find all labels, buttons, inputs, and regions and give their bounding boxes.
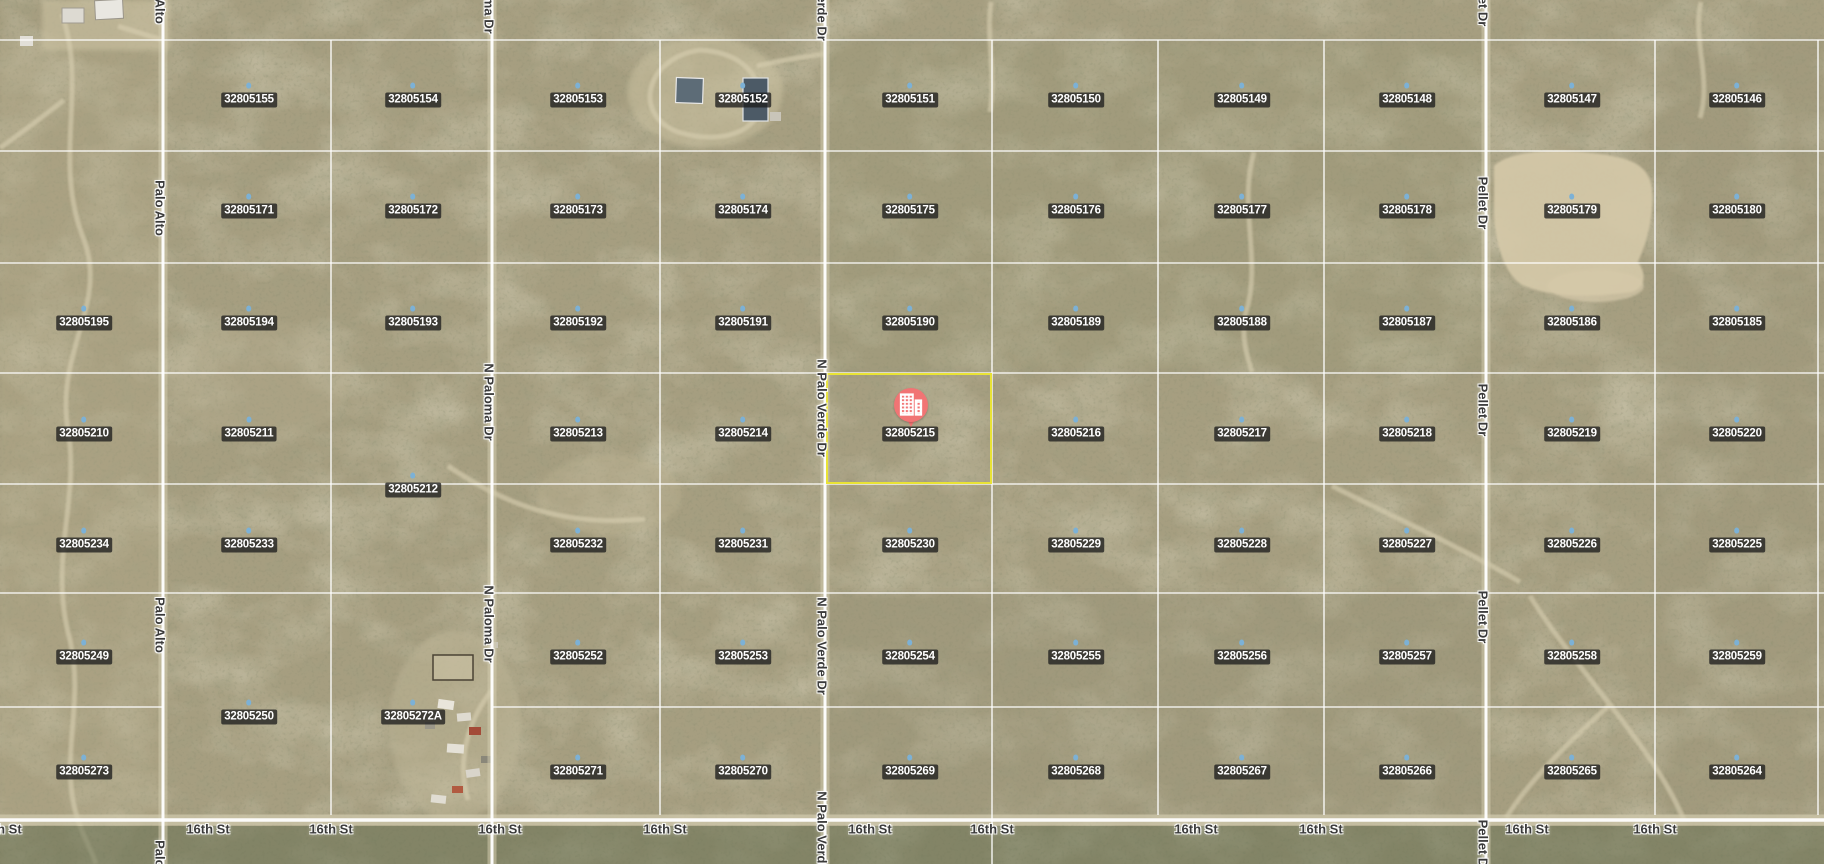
parcel-label[interactable]: 32805150	[1048, 93, 1104, 108]
parcel-label[interactable]: 32805210	[56, 427, 112, 442]
parcel-apn: 32805151	[885, 94, 935, 106]
parcel-point-icon	[1239, 528, 1244, 534]
parcel-point-icon	[1569, 528, 1574, 534]
parcel-apn: 32805174	[718, 205, 768, 217]
parcel-point-icon	[1239, 755, 1244, 761]
parcel-apn: 32805268	[1051, 766, 1101, 778]
parcel-apn: 32805232	[553, 539, 603, 551]
parcel-point-icon	[740, 755, 745, 761]
parcel-apn: 32805147	[1547, 94, 1597, 106]
parcel-apn: 32805188	[1217, 317, 1267, 329]
parcel-apn: 32805173	[553, 205, 603, 217]
parcel-point-icon	[410, 700, 415, 706]
parcel-apn: 32805269	[885, 766, 935, 778]
parcel-point-icon	[740, 417, 745, 423]
parcel-apn: 32805179	[1547, 205, 1597, 217]
parcel-label[interactable]: 32805179	[1544, 204, 1600, 219]
parcel-label[interactable]: 32805147	[1544, 93, 1600, 108]
parcel-apn: 32805185	[1712, 317, 1762, 329]
parcel-point-icon	[1073, 640, 1078, 646]
parcel-label[interactable]: 32805193	[385, 316, 441, 331]
parcel-apn: 32805226	[1547, 539, 1597, 551]
parcel-point-icon	[247, 417, 252, 423]
parcel-point-icon	[1239, 640, 1244, 646]
parcel-label[interactable]: 32805217	[1214, 427, 1270, 442]
parcel-point-icon	[907, 528, 912, 534]
parcel-label[interactable]: 32805216	[1048, 427, 1104, 442]
parcel-apn: 32805230	[885, 539, 935, 551]
parcel-label[interactable]: 32805270	[715, 765, 771, 780]
parcel-point-icon	[740, 83, 745, 89]
parcel-label[interactable]: 32805153	[550, 93, 606, 108]
parcel-apn: 32805225	[1712, 539, 1762, 551]
parcel-label[interactable]: 32805255	[1048, 650, 1104, 665]
parcel-point-icon	[907, 194, 912, 200]
selected-parcel-marker[interactable]	[894, 388, 928, 428]
parcel-label[interactable]: 32805214	[715, 427, 771, 442]
parcel-label[interactable]: 32805259	[1709, 650, 1765, 665]
parcel-apn: 32805148	[1382, 94, 1432, 106]
parcel-apn: 32805212	[388, 484, 438, 496]
parcel-point-icon	[1073, 417, 1078, 423]
parcel-label[interactable]: 32805272A	[381, 710, 445, 725]
parcel-apn: 32805259	[1712, 651, 1762, 663]
parcel-label[interactable]: 32805219	[1544, 427, 1600, 442]
parcel-apn: 32805154	[388, 94, 438, 106]
parcel-apn: 32805217	[1217, 428, 1267, 440]
parcel-apn: 32805256	[1217, 651, 1267, 663]
parcel-label[interactable]: 32805172	[385, 204, 441, 219]
parcel-apn: 32805189	[1051, 317, 1101, 329]
parcel-point-icon	[575, 640, 580, 646]
parcel-apn: 32805220	[1712, 428, 1762, 440]
parcel-point-icon	[246, 528, 251, 534]
parcel-point-icon	[907, 640, 912, 646]
parcel-apn: 32805187	[1382, 317, 1432, 329]
parcel-apn: 32805258	[1547, 651, 1597, 663]
parcel-label[interactable]: 32805173	[550, 204, 606, 219]
parcel-apn: 32805149	[1217, 94, 1267, 106]
parcel-label[interactable]: 32805220	[1709, 427, 1765, 442]
parcel-label[interactable]: 32805154	[385, 93, 441, 108]
parcel-point-icon	[1569, 194, 1574, 200]
parcel-label[interactable]: 32805187	[1379, 316, 1435, 331]
parcel-point-icon	[1734, 417, 1739, 423]
parcel-label[interactable]: 32805252	[550, 650, 606, 665]
parcel-point-icon	[81, 528, 86, 534]
parcel-point-icon	[907, 83, 912, 89]
parcel-apn: 32805270	[718, 766, 768, 778]
parcel-apn: 32805211	[225, 428, 274, 440]
parcel-apn: 32805254	[885, 651, 935, 663]
parcel-apn: 32805249	[59, 651, 109, 663]
parcel-apn: 32805219	[1547, 428, 1597, 440]
parcel-label[interactable]: 32805211	[222, 427, 277, 442]
parcel-point-icon	[246, 700, 251, 706]
parcel-label[interactable]: 32805233	[221, 538, 277, 553]
parcel-point-icon	[81, 306, 86, 312]
parcel-label[interactable]: 32805178	[1379, 204, 1435, 219]
parcel-apn: 32805210	[59, 428, 109, 440]
parcel-point-icon	[575, 528, 580, 534]
parcel-apn: 32805252	[553, 651, 603, 663]
parcel-label[interactable]: 32805212	[385, 483, 441, 498]
parcel-point-icon	[1569, 417, 1574, 423]
parcel-point-icon	[575, 194, 580, 200]
parcel-label[interactable]: 32805229	[1048, 538, 1104, 553]
parcel-label[interactable]: 32805232	[550, 538, 606, 553]
parcel-label[interactable]: 32805269	[882, 765, 938, 780]
parcel-point-icon	[1073, 306, 1078, 312]
parcel-label[interactable]: 32805190	[882, 316, 938, 331]
parcel-label[interactable]: 32805228	[1214, 538, 1270, 553]
parcel-label[interactable]: 32805195	[56, 316, 112, 331]
parcel-point-icon	[740, 194, 745, 200]
parcel-apn: 32805175	[885, 205, 935, 217]
parcel-apn: 32805229	[1051, 539, 1101, 551]
parcel-label[interactable]: 32805186	[1544, 316, 1600, 331]
parcel-apn: 32805195	[59, 317, 109, 329]
parcel-point-icon	[1569, 640, 1574, 646]
parcel-point-icon	[575, 755, 580, 761]
parcel-apn: 32805265	[1547, 766, 1597, 778]
parcel-point-icon	[1073, 83, 1078, 89]
parcel-label[interactable]: 32805249	[56, 650, 112, 665]
parcel-point-icon	[575, 83, 580, 89]
map-canvas[interactable]: Palo AltoPalo AltoPalo AltoPalo AltoN Pa…	[0, 0, 1824, 864]
parcel-apn: 32805172	[388, 205, 438, 217]
parcel-label[interactable]: 32805258	[1544, 650, 1600, 665]
parcel-label[interactable]: 32805273	[56, 765, 112, 780]
parcel-label[interactable]: 32805266	[1379, 765, 1435, 780]
parcel-point-icon	[740, 640, 745, 646]
parcel-apn: 32805250	[224, 711, 274, 723]
parcel-point-icon	[1404, 306, 1409, 312]
parcel-point-icon	[1734, 640, 1739, 646]
parcel-apn: 32805233	[224, 539, 274, 551]
parcel-label[interactable]: 32805227	[1379, 538, 1435, 553]
parcel-point-icon	[246, 194, 251, 200]
parcel-apn: 32805193	[388, 317, 438, 329]
parcel-label[interactable]: 32805264	[1709, 765, 1765, 780]
parcel-point-icon	[1734, 755, 1739, 761]
parcel-label[interactable]: 32805176	[1048, 204, 1104, 219]
parcel-apn: 32805272A	[384, 711, 442, 723]
parcel-point-icon	[246, 306, 251, 312]
parcel-label[interactable]: 32805148	[1379, 93, 1435, 108]
parcel-point-icon	[246, 83, 251, 89]
parcel-point-icon	[81, 417, 86, 423]
parcel-point-icon	[575, 417, 580, 423]
parcel-apn: 32805215	[885, 428, 935, 440]
parcel-point-icon	[1239, 194, 1244, 200]
parcel-label[interactable]: 32805149	[1214, 93, 1270, 108]
parcel-apn: 32805227	[1382, 539, 1432, 551]
parcel-point-icon	[410, 473, 415, 479]
parcel-label[interactable]: 32805171	[221, 204, 277, 219]
parcel-point-icon	[1404, 417, 1409, 423]
parcel-label[interactable]: 32805250	[221, 710, 277, 725]
parcel-apn: 32805218	[1382, 428, 1432, 440]
parcel-label[interactable]: 32805180	[1709, 204, 1765, 219]
parcel-apn: 32805178	[1382, 205, 1432, 217]
parcel-apn: 32805231	[718, 539, 768, 551]
parcel-apn: 32805266	[1382, 766, 1432, 778]
parcel-point-icon	[81, 755, 86, 761]
parcel-label[interactable]: 32805189	[1048, 316, 1104, 331]
parcel-apn: 32805150	[1051, 94, 1101, 106]
parcel-label[interactable]: 32805152	[715, 93, 771, 108]
parcel-apn: 32805190	[885, 317, 935, 329]
parcel-label[interactable]: 32805185	[1709, 316, 1765, 331]
parcel-label[interactable]: 32805267	[1214, 765, 1270, 780]
parcel-label[interactable]: 32805177	[1214, 204, 1270, 219]
parcel-apn: 32805213	[553, 428, 603, 440]
parcel-point-icon	[1569, 306, 1574, 312]
parcel-apn: 32805176	[1051, 205, 1101, 217]
parcel-label[interactable]: 32805155	[221, 93, 277, 108]
parcel-label[interactable]: 32805194	[221, 316, 277, 331]
parcel-apn: 32805253	[718, 651, 768, 663]
parcel-point-icon	[740, 528, 745, 534]
parcel-label[interactable]: 32805225	[1709, 538, 1765, 553]
parcel-apn: 32805257	[1382, 651, 1432, 663]
parcel-point-icon	[1404, 528, 1409, 534]
parcel-point-icon	[1734, 194, 1739, 200]
parcel-apn: 32805186	[1547, 317, 1597, 329]
parcel-label[interactable]: 32805192	[550, 316, 606, 331]
parcel-apn: 32805255	[1051, 651, 1101, 663]
parcel-label[interactable]: 32805175	[882, 204, 938, 219]
parcel-label[interactable]: 32805218	[1379, 427, 1435, 442]
parcel-point-icon	[740, 306, 745, 312]
parcel-point-icon	[1569, 83, 1574, 89]
parcel-apn: 32805228	[1217, 539, 1267, 551]
parcel-point-icon	[1239, 306, 1244, 312]
parcel-point-icon	[907, 755, 912, 761]
parcel-point-icon	[1404, 755, 1409, 761]
parcel-label[interactable]: 32805191	[715, 316, 771, 331]
parcel-label[interactable]: 32805215	[882, 427, 938, 442]
parcel-point-icon	[410, 306, 415, 312]
parcel-apn: 32805234	[59, 539, 109, 551]
parcel-point-icon	[410, 194, 415, 200]
parcel-apn: 32805271	[553, 766, 603, 778]
parcel-apn: 32805216	[1051, 428, 1101, 440]
parcel-apn: 32805180	[1712, 205, 1762, 217]
parcel-label[interactable]: 32805188	[1214, 316, 1270, 331]
parcel-label[interactable]: 32805268	[1048, 765, 1104, 780]
parcel-point-icon	[1734, 306, 1739, 312]
parcel-labels-layer: 3280515532805154328051533280515232805151…	[0, 0, 1824, 864]
parcel-label[interactable]: 32805151	[882, 93, 938, 108]
parcel-point-icon	[1734, 83, 1739, 89]
parcel-point-icon	[1404, 640, 1409, 646]
parcel-point-icon	[1734, 528, 1739, 534]
parcel-apn: 32805146	[1712, 94, 1762, 106]
parcel-point-icon	[1569, 755, 1574, 761]
parcel-point-icon	[1404, 83, 1409, 89]
parcel-label[interactable]: 32805234	[56, 538, 112, 553]
parcel-apn: 32805177	[1217, 205, 1267, 217]
building-icon	[898, 392, 924, 418]
marker-circle	[894, 388, 928, 422]
parcel-apn: 32805264	[1712, 766, 1762, 778]
parcel-apn: 32805152	[718, 94, 768, 106]
parcel-point-icon	[907, 306, 912, 312]
parcel-point-icon	[1073, 755, 1078, 761]
parcel-point-icon	[1073, 528, 1078, 534]
parcel-point-icon	[1239, 83, 1244, 89]
parcel-label[interactable]: 32805257	[1379, 650, 1435, 665]
parcel-point-icon	[1073, 194, 1078, 200]
parcel-point-icon	[81, 640, 86, 646]
parcel-label[interactable]: 32805256	[1214, 650, 1270, 665]
parcel-apn: 32805171	[224, 205, 274, 217]
parcel-point-icon	[410, 83, 415, 89]
parcel-label[interactable]: 32805174	[715, 204, 771, 219]
parcel-apn: 32805194	[224, 317, 274, 329]
parcel-label[interactable]: 32805230	[882, 538, 938, 553]
parcel-point-icon	[575, 306, 580, 312]
parcel-apn: 32805273	[59, 766, 109, 778]
parcel-apn: 32805267	[1217, 766, 1267, 778]
parcel-label[interactable]: 32805146	[1709, 93, 1765, 108]
parcel-apn: 32805155	[224, 94, 274, 106]
parcel-label[interactable]: 32805226	[1544, 538, 1600, 553]
parcel-label[interactable]: 32805265	[1544, 765, 1600, 780]
parcel-apn: 32805191	[718, 317, 768, 329]
parcel-apn: 32805214	[718, 428, 768, 440]
parcel-label[interactable]: 32805213	[550, 427, 606, 442]
parcel-label[interactable]: 32805254	[882, 650, 938, 665]
parcel-label[interactable]: 32805271	[550, 765, 606, 780]
parcel-apn: 32805153	[553, 94, 603, 106]
parcel-label[interactable]: 32805253	[715, 650, 771, 665]
parcel-apn: 32805192	[553, 317, 603, 329]
parcel-point-icon	[1404, 194, 1409, 200]
parcel-point-icon	[1239, 417, 1244, 423]
parcel-label[interactable]: 32805231	[715, 538, 771, 553]
